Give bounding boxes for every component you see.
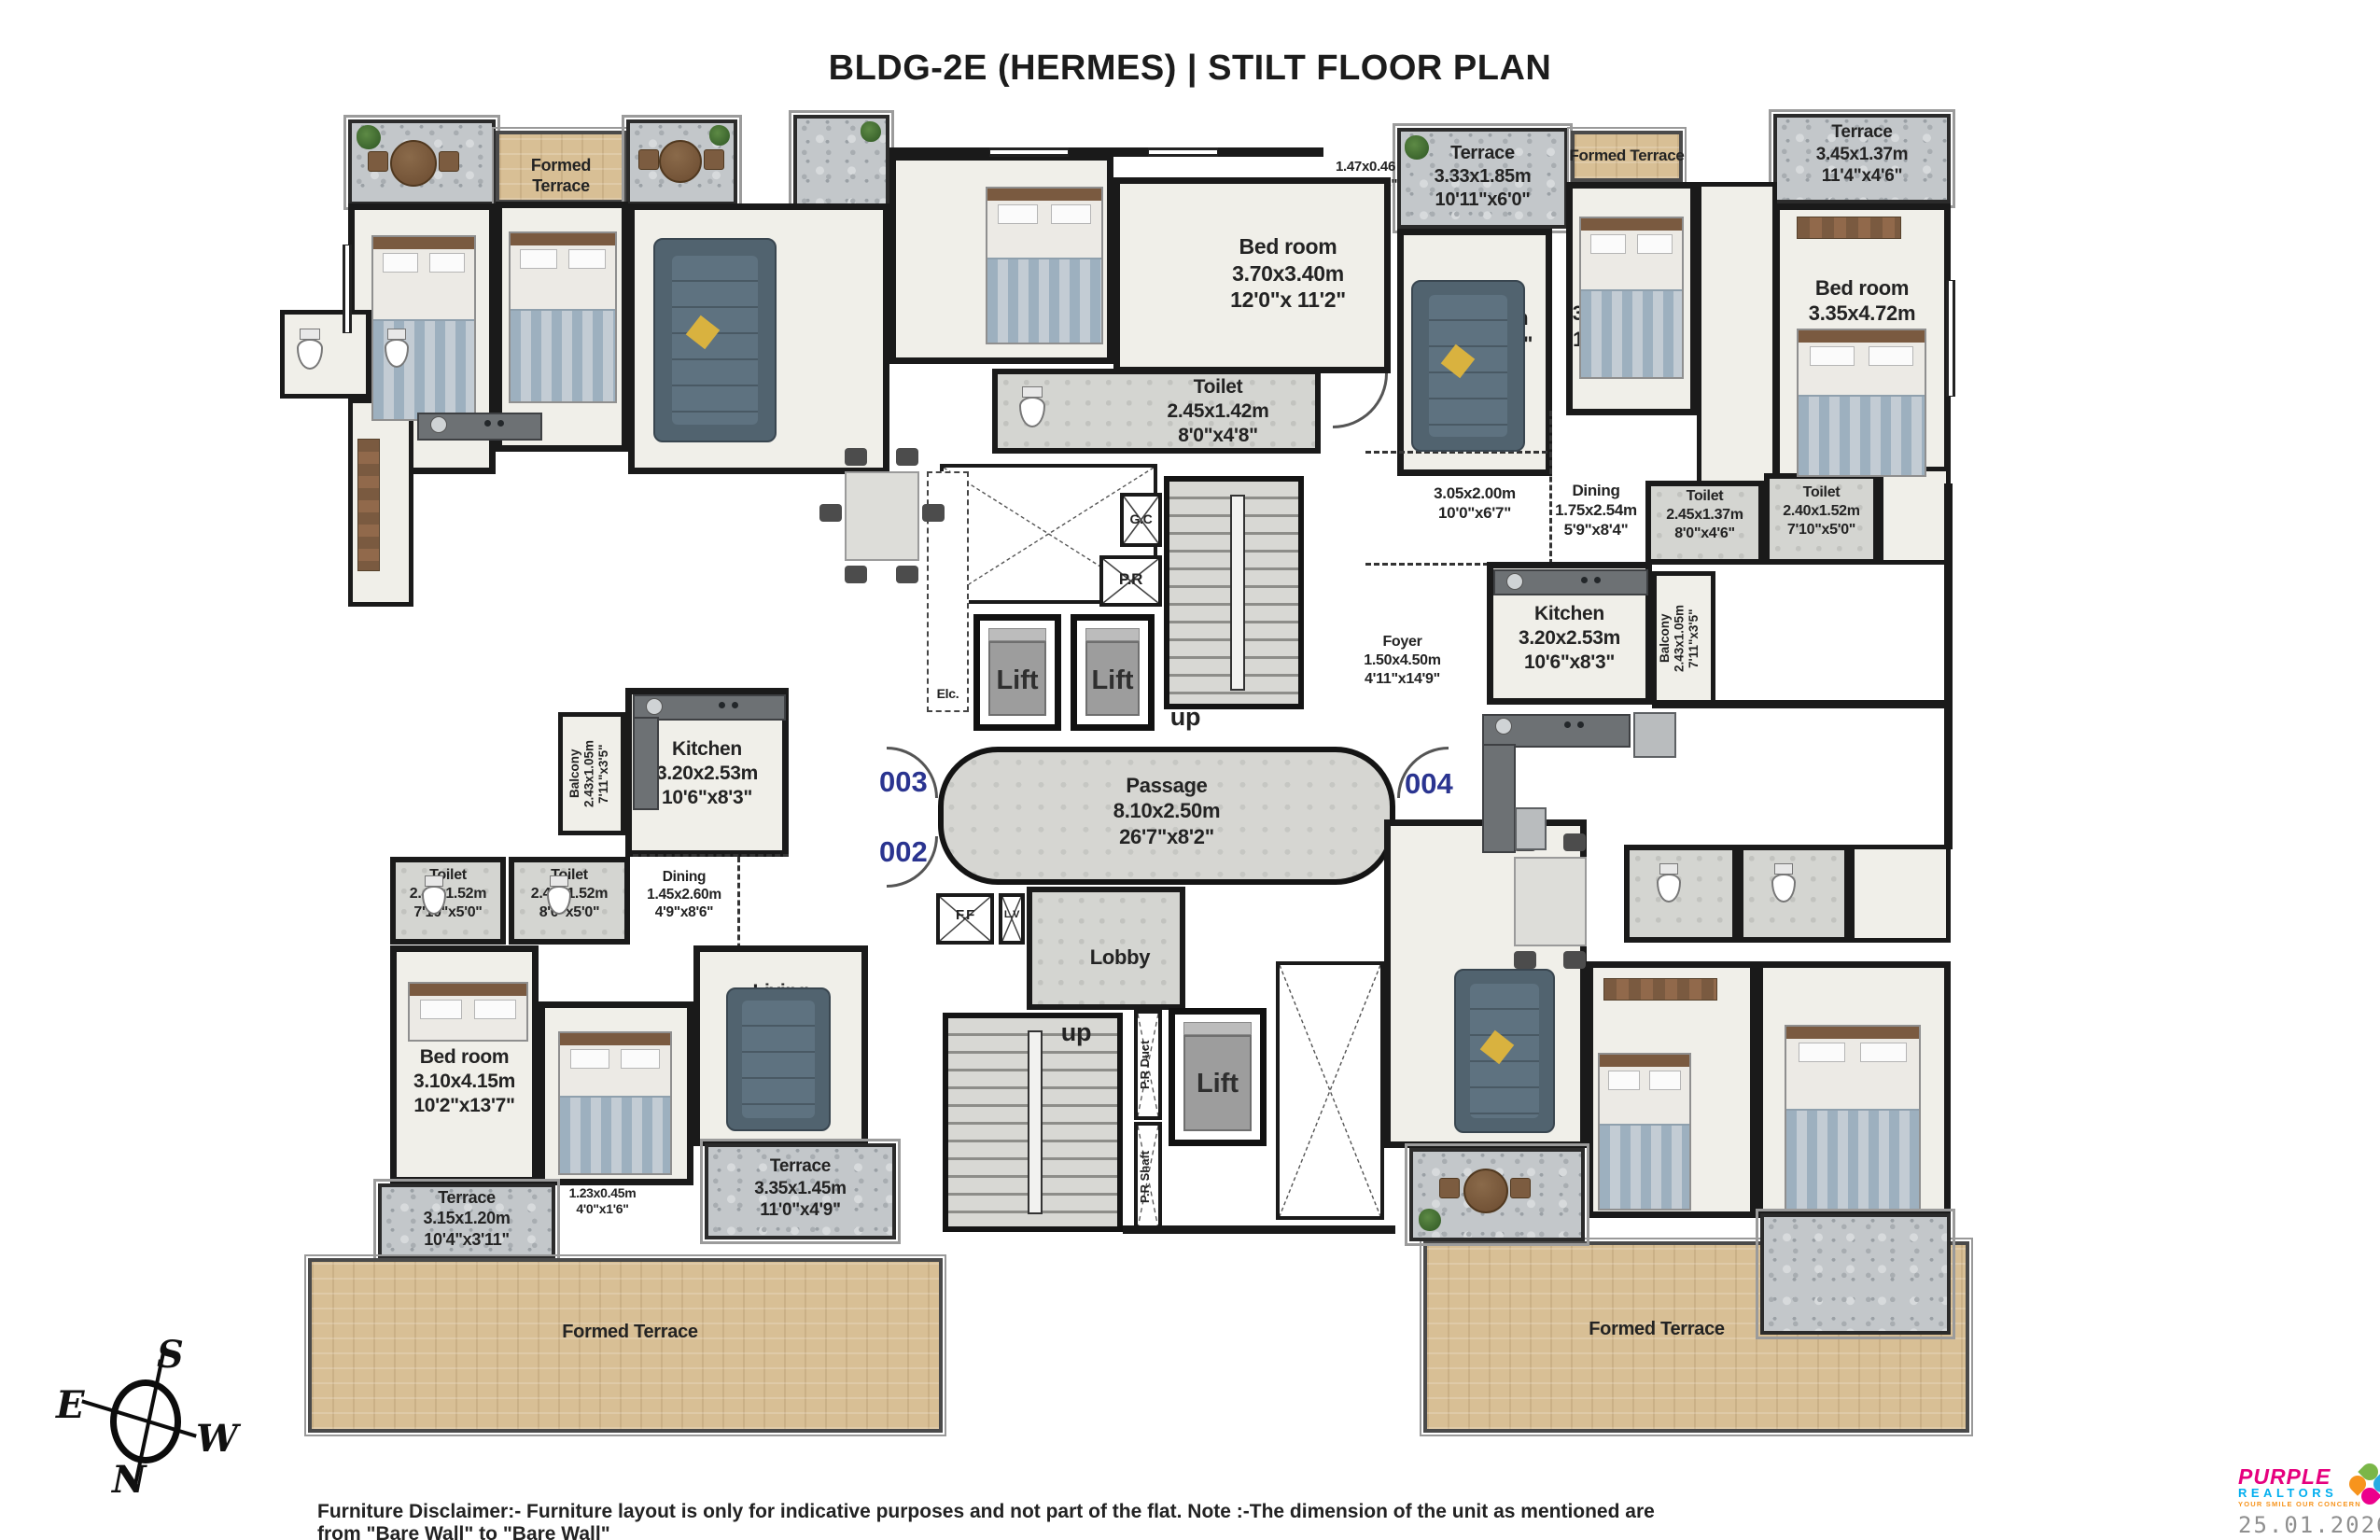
- formed-terrace-bottom-left-label: Formed Terrace: [523, 1321, 737, 1344]
- wall-right-outer: [1944, 483, 1953, 849]
- sofa-icon-4: [1454, 969, 1555, 1133]
- terrace-top-far-right-label: Terrace3.45x1.37m11'4"x4'6": [1778, 121, 1946, 188]
- kitchen-counter-001-2: [1482, 744, 1516, 853]
- toilet-icon-7: [1771, 863, 1796, 903]
- window-2: [1148, 147, 1218, 157]
- lift-2-label: Lift: [1077, 665, 1148, 696]
- wall-entrance-top: [889, 147, 1323, 157]
- bed-icon-335: [1797, 329, 1926, 477]
- sofa-icon-2: [1411, 280, 1525, 452]
- duct-void-2: [1276, 961, 1384, 1220]
- bed-icon-3: [986, 187, 1103, 344]
- toilet-protrude-1: [280, 310, 371, 399]
- dashed-line-3: [1549, 411, 1552, 565]
- brand-star-icon: [2349, 1463, 2380, 1505]
- page-title: BLDG-2E (HERMES) | STILT FLOOR PLAN: [0, 49, 2380, 89]
- corridor-004: [1697, 182, 1777, 485]
- lift-2: Lift: [1071, 614, 1155, 731]
- bedroom-370-label: Bed room3.70x3.40m12'0"x 11'2": [1195, 233, 1381, 314]
- terrace-335-145-label: Terrace3.35x1.45m11'0"x4'9": [709, 1155, 891, 1222]
- terrace-001-b: [1760, 1213, 1951, 1335]
- formed-terrace-bottom-right-label: Formed Terrace: [1549, 1318, 1764, 1341]
- lift-1-label: Lift: [980, 665, 1055, 696]
- elc-label: Elc.: [922, 686, 973, 702]
- bedroom-310-label: Bed room3.10x4.15m10'2"x13'7": [387, 1045, 541, 1118]
- compass-north: N: [112, 1458, 147, 1502]
- toilet-245142-label: Toilet2.45x1.42m8'0"x4'8": [1125, 375, 1311, 448]
- gc-label: G.C: [1120, 511, 1162, 527]
- door-arc-004: [1397, 747, 1449, 798]
- toilet-icon-1: [297, 329, 323, 370]
- window-dim-bottom-left: 1.23x0.45m4'0"x1'6": [558, 1185, 647, 1218]
- pr-label: P.R: [1099, 569, 1162, 589]
- kitchen-counter-001-1: [1482, 714, 1631, 748]
- door-arc-002: [887, 836, 938, 888]
- closet-001: [1850, 845, 1951, 943]
- toilet-240152l-label: Toilet2.40x1.52m7'10"x5'0": [393, 866, 503, 921]
- pr-shaft-label: P.R Shaft: [1139, 1127, 1153, 1226]
- ff-label: F.F: [936, 907, 994, 925]
- lift-3: Lift: [1169, 1008, 1267, 1146]
- door-arc-bed370: [1333, 373, 1388, 428]
- toilet-icon-2: [385, 329, 409, 368]
- formed-terrace-top-left-label: Formed Terrace: [500, 155, 622, 197]
- bed-icon-300: [558, 1031, 672, 1175]
- lobby-label: Lobby: [1064, 945, 1176, 970]
- store-right: [1879, 467, 1951, 565]
- plant-icon-4: [1405, 135, 1429, 160]
- fridge-icon: [1515, 807, 1547, 850]
- compass-east: E: [56, 1383, 85, 1427]
- bed-icon-2: [509, 231, 617, 403]
- dining-175-label: Dining1.75x2.54m5'9"x8'4": [1540, 481, 1652, 539]
- compass-west: W: [196, 1417, 238, 1461]
- wardrobe-icon-1: [1797, 217, 1901, 239]
- formed-terrace-bottom-left: [308, 1258, 943, 1433]
- plant-icon-3: [861, 121, 881, 142]
- toilet-icon-3: [422, 875, 446, 915]
- brand-logo: PURPLE REALTORS YOUR SMILE OUR CONCERN: [2238, 1467, 2380, 1512]
- lift-1: Lift: [973, 614, 1061, 731]
- kitchen-counter-left-2: [633, 717, 659, 810]
- toilet-icon-6: [1657, 863, 1681, 903]
- wall-unit001-top: [1652, 700, 1953, 708]
- toilet-240152r-label: Toilet2.40x1.52m7'10"x5'0": [1767, 483, 1876, 539]
- pr-duct-label: P.R Duct: [1139, 1015, 1153, 1114]
- door-arc-003: [887, 747, 938, 798]
- lift-3-label: Lift: [1175, 1069, 1260, 1099]
- kitchen-right-label: Kitchen3.20x2.53m10'6"x8'3": [1491, 602, 1647, 675]
- plant-icon-2: [709, 125, 730, 146]
- plant-icon-5: [1419, 1209, 1441, 1231]
- passage-label: Passage8.10x2.50m26'7"x8'2": [1055, 773, 1279, 849]
- toilet-icon-4: [547, 875, 571, 915]
- open-305200-label: 3.05x2.00m10'0"x6'7": [1405, 483, 1545, 523]
- window-3: [343, 245, 352, 333]
- bed-icon-001a: [1598, 1053, 1691, 1211]
- plant-icon-1: [357, 125, 381, 149]
- toilet-245137-label: Toilet2.45x1.37m8'0"x4'6": [1648, 487, 1761, 542]
- kitchen-counter-right-1: [1493, 569, 1648, 595]
- sofa-icon-3: [726, 987, 831, 1131]
- window-1: [989, 147, 1069, 157]
- wardrobe-icon-3: [1603, 978, 1717, 1001]
- dashed-line-4: [633, 854, 789, 857]
- foyer-label: Foyer1.50x4.50m4'11"x14'9": [1330, 633, 1475, 688]
- wall-core-bottom: [1123, 1225, 1395, 1234]
- window-4: [1946, 280, 1955, 397]
- formed-terrace-top-right-label: Formed Terrace: [1568, 146, 1686, 165]
- bed-icon-305: [1579, 217, 1684, 379]
- floor-plan-page: BLDG-2E (HERMES) | STILT FLOOR PLAN Form…: [0, 0, 2380, 1540]
- balcony-left-label: Balcony2.43x1.05m7'11"x3'5": [567, 719, 611, 829]
- up-label-2: up: [1043, 1017, 1109, 1048]
- toilet-icon-5: [1019, 386, 1045, 427]
- toilet-001-a: [1624, 845, 1738, 943]
- lv-label: L.V: [995, 909, 1029, 922]
- bed-icon-001b: [1785, 1025, 1921, 1211]
- bed-icon-310: [408, 982, 528, 1042]
- compass-south: S: [157, 1333, 184, 1377]
- balcony-right-label: Balcony2.43x1.05m7'11"x3'5": [1658, 579, 1701, 698]
- plan-date: 25.01.2026: [2238, 1512, 2380, 1538]
- terrace-315-label: Terrace3.15x1.20m10'4"x3'11": [383, 1187, 551, 1250]
- staircase-upper: [1164, 476, 1304, 709]
- kitchen-counter-003: [417, 413, 542, 441]
- furniture-disclaimer: Furniture Disclaimer:- Furniture layout …: [317, 1501, 1689, 1540]
- dining-145-label: Dining1.45x2.60m4'9"x8'6": [633, 868, 735, 922]
- wardrobe-icon-2: [357, 439, 380, 571]
- up-label-1: up: [1153, 702, 1218, 733]
- washing-machine-icon: [1633, 712, 1676, 758]
- sofa-icon-1: [653, 238, 777, 442]
